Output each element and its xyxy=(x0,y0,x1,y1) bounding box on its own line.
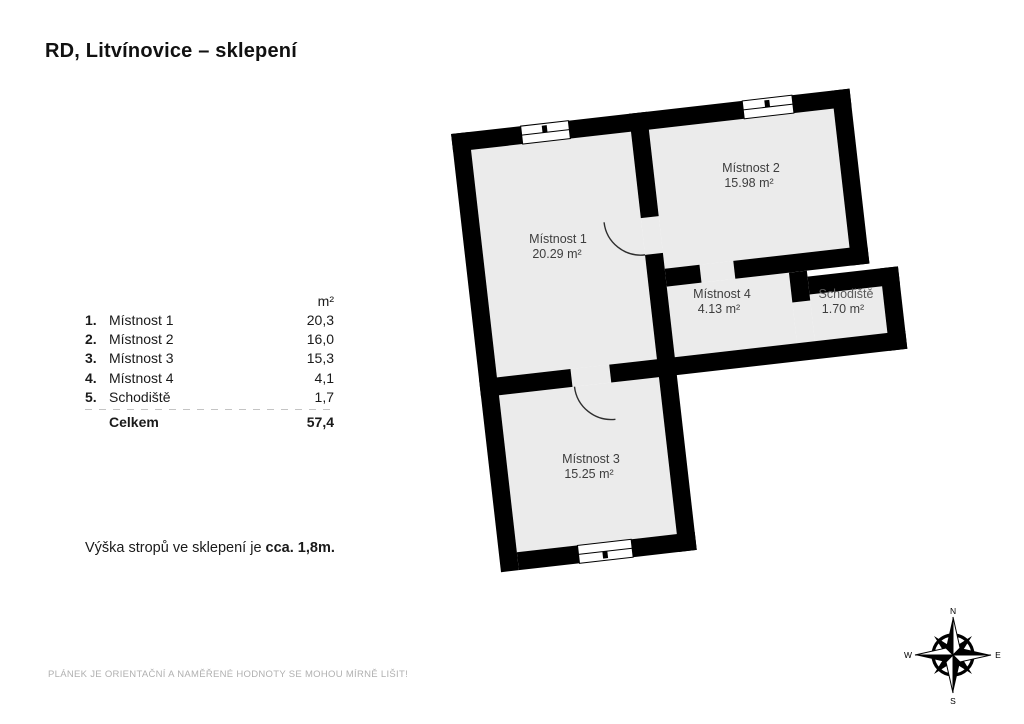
door-opening-room2-room4 xyxy=(699,261,735,283)
compass-south-label: S xyxy=(950,696,956,706)
floor-plan-rotated-group xyxy=(451,85,927,572)
room-4-name: Místnost 4 xyxy=(693,287,751,301)
compass-main-points xyxy=(915,617,991,693)
stairs-name: Schodiště xyxy=(819,287,874,301)
room-3-name: Místnost 3 xyxy=(562,452,620,466)
room-2-area: 15.98 m² xyxy=(724,176,773,190)
page: RD, Litvínovice – sklepení m² 1. Místnos… xyxy=(0,0,1024,724)
room-3-area: 15.25 m² xyxy=(564,467,613,481)
room-1-name: Místnost 1 xyxy=(529,232,587,246)
room-2-name: Místnost 2 xyxy=(722,161,780,175)
compass-rose-icon: N E S W xyxy=(904,606,1001,706)
compass-north-label: N xyxy=(950,606,956,616)
room-1-area: 20.29 m² xyxy=(532,247,581,261)
compass-west-label: W xyxy=(904,650,912,660)
floor-plan: Místnost 1 20.29 m² Místnost 2 15.98 m² … xyxy=(0,0,1024,724)
compass-east-label: E xyxy=(995,650,1001,660)
stairs-area: 1.70 m² xyxy=(822,302,864,316)
wall-room4-stairs-stub xyxy=(789,271,810,303)
room-4-area: 4.13 m² xyxy=(698,302,740,316)
